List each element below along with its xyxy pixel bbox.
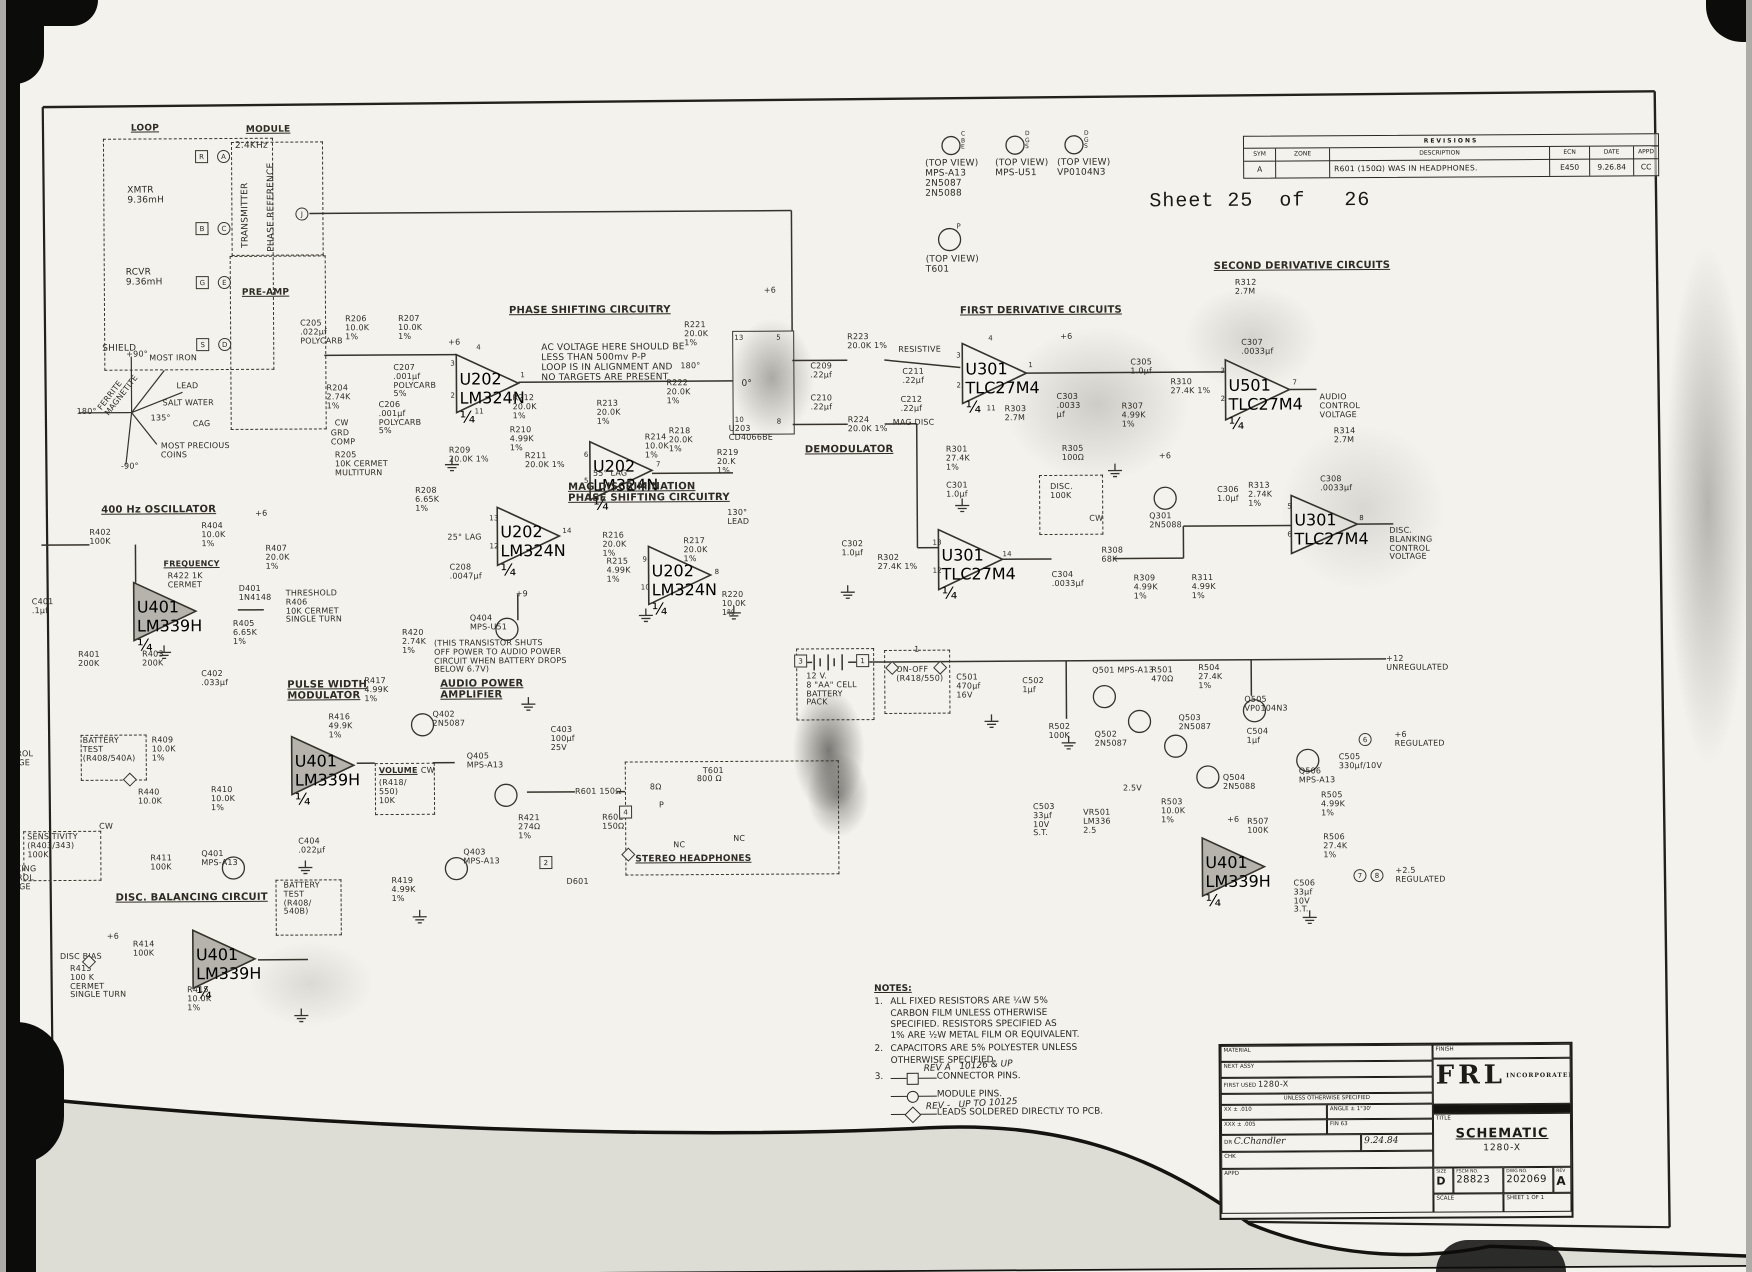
schematic-label: FREQUENCY [164, 560, 220, 569]
material-cell: MATERIAL [1221, 1045, 1433, 1062]
schematic-label: AUDIO POWER AMPLIFIER [440, 678, 523, 701]
schematic-label: C307 .0033μf [1241, 339, 1273, 357]
schematic-label: Q405 MPS-A13 [467, 752, 504, 770]
schematic-label: 14 [562, 528, 571, 536]
schematic-label: 7 [1292, 379, 1297, 387]
dr-date-cell: 9.24.84 [1361, 1134, 1433, 1151]
schematic-label: C506 33μf 10V 3.T. [1293, 879, 1315, 914]
schematic-label: C503 33μf 10V S.T. [1033, 803, 1055, 838]
schematic-label: DISC. BALANCING CIRCUIT [116, 892, 268, 904]
square-pin: 2 [539, 856, 552, 869]
schematic-label: C303 .0033 μf [1057, 393, 1081, 420]
schematic-label: 135° [151, 414, 171, 423]
ground-symbol [955, 498, 969, 511]
ground-symbol [639, 608, 653, 621]
schematic-label: 1 [914, 646, 919, 655]
schematic-label: +6 [764, 287, 776, 296]
schematic-label: R505 4.99K 1% [1321, 791, 1345, 818]
square-pin: 3 [794, 654, 807, 667]
title-cell: TITLE SCHEMATIC 1280-X [1433, 1113, 1571, 1168]
schematic-label: CW [335, 419, 349, 428]
rev-value: A [1556, 1174, 1566, 1188]
ground-symbol [841, 585, 855, 598]
schematic-label: R416 49.9K 1% [328, 713, 352, 740]
schematic-label: R404 10.0K 1% [201, 522, 225, 549]
opamp-label: U202 LM324N ¼ [652, 561, 691, 618]
schematic-label: P [659, 801, 664, 810]
schematic-label: (THIS TRANSISTOR SHUTS OFF POWER TO AUDI… [434, 639, 567, 675]
schematic-label: C212 .22μf [901, 396, 923, 414]
opamp-label: U401 LM339H ¼ [137, 597, 176, 654]
schematic-label: R216 20.0K 1% [602, 532, 626, 559]
schematic-label: Q503 2N5087 [1178, 714, 1211, 732]
schematic-label: 12 [489, 543, 498, 551]
schematic-label: R301 27.4K 1% [946, 445, 970, 472]
schematic-label: +6 [255, 510, 267, 519]
schematic-label: R217 20.0K 1% [683, 537, 707, 564]
schematic-label: R209 20.0K 1% [449, 446, 489, 464]
finish-cell: FINISH [1433, 1044, 1571, 1059]
transistor-symbol [939, 229, 961, 251]
schematic-label: MAG DISCRIMINATION PHASE SHIFTING CIRCUI… [568, 481, 730, 504]
schematic-label: 25° LAG [447, 533, 481, 542]
schematic-label: AC VOLTAGE HERE SHOULD BE LESS THAN 500m… [541, 343, 685, 383]
chk-label: CHK [1224, 1154, 1236, 1160]
transistor-symbol [942, 137, 960, 155]
schematic-label: R222 20.0K 1% [666, 379, 690, 406]
schematic-label: R503 10.0K 1% [1161, 798, 1185, 825]
opamp-label: U202 LM324N ¼ [500, 522, 539, 579]
square-pin: G [196, 276, 209, 289]
schematic-label: R219 20.K 1% [717, 449, 739, 476]
first-used-cell: FIRST USED 1280-X [1221, 1077, 1433, 1094]
schematic-label: C505 330μf/10V [1339, 753, 1382, 771]
schematic-label: R313 2.74K 1% [1248, 482, 1272, 509]
schematic-label: 3 [956, 353, 961, 361]
schematic-label: +2.5 REGULATED [1395, 867, 1445, 885]
rev-description: R601 (150Ω) WAS IN HEADPHONES. [1330, 160, 1550, 177]
schematic-label: 1 [520, 372, 525, 380]
fscm-value: 28823 [1456, 1175, 1490, 1186]
schematic-label: THRESHOLD R406 10K CERMET SINGLE TURN [286, 589, 342, 625]
rev-col-appd: APPD [1634, 146, 1658, 159]
schematic-label: C209 .22μf [810, 362, 832, 380]
tol-fin: FIN 63 [1330, 1121, 1348, 1127]
schematic-label: +90° [126, 350, 148, 359]
schematic-label: R311 4.99K 1% [1192, 574, 1216, 601]
circle-pin: 6 [1359, 733, 1372, 746]
schematic-label: BATTERY TEST (R408/540A) [83, 737, 136, 764]
schematic-label: 13 [734, 335, 743, 343]
schematic-label: R309 4.99K 1% [1134, 574, 1158, 601]
schematic-label: R410 10.0K 1% [211, 786, 235, 813]
schematic-label: C205 .022μf POLYCARB [300, 319, 343, 346]
schematic-label: 3 [450, 361, 455, 369]
schematic-label: R420 2.74K 1% [402, 629, 426, 656]
dr-value: C.Chandler [1234, 1137, 1286, 1147]
opamp-label: U301 TLC27M4 [1294, 510, 1335, 548]
schematic-label: R223 20.0K 1% [847, 333, 887, 351]
size-value: D [1436, 1175, 1446, 1188]
schematic-label: R417 4.99K 1% [364, 677, 388, 704]
schematic-label: GRD COMP [331, 429, 356, 447]
rev-sym: A [1244, 162, 1276, 178]
schematic-label: R504 27.4K 1% [1198, 664, 1222, 691]
schematic-label: R507 100K [1247, 818, 1269, 836]
schematic-label: STEREO HEADPHONES [635, 855, 751, 866]
schematic-label: (TOP VIEW) MPS-U51 [995, 159, 1048, 179]
opamp-label: U301 TLC27M4 ¼ [965, 359, 1005, 416]
rev-date: 9.26.84 [1590, 159, 1634, 175]
schematic-label: CW [1089, 515, 1103, 524]
schematic-label: (TOP VIEW) VP0104N3 [1057, 159, 1110, 179]
transistor-symbol [1197, 766, 1219, 788]
note-number: 3. [875, 1072, 891, 1083]
schematic-label: CAG [193, 420, 211, 429]
schematic-label: R419 4.99K 1% [391, 877, 415, 904]
model-value: 1280-X [1436, 1143, 1568, 1155]
circle-pin: E [218, 276, 231, 289]
schematic-sheet: U202 LM324N ¼U202 LM324N ¼U202 LM324N ¼U… [6, 0, 1746, 1272]
notes-title: NOTES: [874, 982, 1156, 995]
schematic-label: PULSE WIDTH MODULATOR [287, 679, 367, 701]
schematic-label: R207 10.0K 1% [398, 315, 422, 342]
rev-footnote-line2: REV - UP TO 10125 [926, 1096, 1018, 1114]
circle-pin: J [295, 207, 308, 220]
schematic-label: R501 470Ω [1151, 666, 1173, 684]
finish-label: FINISH [1436, 1047, 1454, 1053]
schematic-label: PHASE SHIFTING CIRCUITRY [509, 304, 671, 316]
schematic-label: CW [99, 823, 113, 832]
schematic-label: R310 27.4K 1% [1170, 378, 1210, 396]
schematic-label: NC [673, 841, 685, 850]
circle-pin: A [217, 150, 230, 163]
opamp-label: U202 LM324N ¼ [459, 369, 498, 426]
schematic-label: Q301 2N5088 [1149, 512, 1182, 530]
opamp-label: U401 LM339H ¼ [295, 751, 334, 808]
dwg-no-value: 202069 [1506, 1174, 1547, 1185]
revision-table: REVISIONS SYM ZONE DESCRIPTION ECN DATE … [1243, 133, 1659, 179]
schematic-label: -90° [121, 463, 139, 472]
schematic-label: R411 100K [150, 854, 172, 872]
schematic-label: D G S [1084, 131, 1089, 151]
schematic-label: 7 [656, 461, 661, 469]
schematic-label: 4 [476, 344, 481, 352]
schematic-label: R401 200K [78, 651, 100, 669]
schematic-label: +6 [1159, 452, 1171, 461]
schematic-label: R303 2.7M [1005, 405, 1027, 423]
title-block: MATERIAL NEXT ASSY FIRST USED 1280-X UNL… [1218, 1042, 1573, 1220]
schematic-label: VOLUME [379, 767, 418, 776]
schematic-label: R204 2.74K 1% [326, 384, 350, 411]
wire-segment [1183, 525, 1291, 526]
schematic-label: 2.4KHz [235, 142, 268, 152]
tol-fin-cell: FIN 63 [1327, 1119, 1433, 1135]
schematic-label: 5 [776, 335, 781, 343]
revision-row: A R601 (150Ω) WAS IN HEADPHONES. E450 9.… [1244, 159, 1658, 178]
schematic-label: +6 [107, 933, 119, 942]
schematic-label: (R418/ 550) 10K [379, 779, 407, 806]
schematic-label: R314 2.7M [1334, 427, 1356, 445]
schematic-label: 400 Hz OSCILLATOR [101, 504, 216, 516]
square-icon [907, 1073, 919, 1085]
rev-ecn: E450 [1550, 160, 1590, 176]
schematic-label: BLANKING CONTROL VOLTAGE [6, 865, 37, 892]
schematic-label: 6 [584, 452, 589, 460]
company-name: FRL [1436, 1060, 1507, 1090]
schematic-label: C211 .22μf [902, 368, 924, 386]
first-used-value: 1280-X [1258, 1080, 1289, 1089]
transistor-symbol [495, 784, 517, 806]
schematic-label: Q506 MPS-A13 [1299, 767, 1336, 785]
schematic-label: R413 100 K CERMET SINGLE TURN [70, 965, 126, 1001]
schematic-label: MOST PRECIOUS COINS [161, 442, 230, 460]
circle-pin: 8 [1370, 869, 1383, 882]
schematic-label: R307 4.99K 1% [1122, 402, 1146, 429]
schematic-label: +12 UNREGULATED [1386, 655, 1448, 673]
schematic-label: MOST IRON [149, 354, 197, 363]
circle-pin: D [218, 338, 231, 351]
circle-icon [907, 1091, 919, 1103]
schematic-label: C402 .033μf [201, 670, 228, 688]
schematic-label: 11 [475, 408, 484, 416]
fscm-cell: FSCM NO.28823 [1453, 1167, 1503, 1193]
schematic-label: C210 .22μf [811, 394, 833, 412]
schematic-label: R302 27.4K 1% [877, 554, 917, 572]
schematic-label: 1 [1028, 362, 1033, 370]
ground-symbol [298, 860, 312, 873]
schematic-label: R407 20.0K 1% [265, 545, 289, 572]
schematic-label: C302 1.0μf [841, 540, 863, 558]
phase-vector-line [126, 413, 132, 465]
ground-symbol [984, 714, 998, 727]
scale-cell: SCALE [1433, 1193, 1503, 1212]
schematic-label: R403 200K [142, 650, 164, 668]
schematic-label: C403 100μf 25V [551, 726, 575, 753]
rev-footnote: REV A 10126 & UP REV - UP TO 10125 [922, 1033, 1019, 1139]
schematic-label: AUDIO CONTROL VOLTAGE [6, 741, 33, 768]
schematic-label: LOOP [131, 124, 159, 134]
scale-label: SCALE [1436, 1196, 1454, 1202]
square-pin: S [196, 338, 209, 351]
schematic-label: MAG DISC [893, 419, 935, 428]
schematic-label: +9 [516, 590, 528, 599]
sheet-of-label: SHEET 1 OF 1 [1506, 1195, 1544, 1201]
schematic-label: MODULE [246, 126, 291, 136]
schematic-label: R409 10.0K 1% [152, 736, 176, 763]
wire-segment [791, 211, 792, 331]
schematic-label: R213 20.0K 1% [597, 400, 621, 427]
schematic-label: 8 [715, 569, 720, 577]
schematic-label: 10 [641, 584, 650, 592]
opamp-label: U501 TLC27M4 ¼ [1228, 376, 1268, 433]
sheet-cell: SHEET 1 OF 1 [1503, 1193, 1571, 1212]
schematic-label: 180° [77, 408, 97, 417]
first-used-label: FIRST USED [1224, 1083, 1256, 1089]
schematic-label: R422 1K CERMET [168, 572, 203, 590]
transistor-symbol [1093, 686, 1115, 708]
schematic-label: C504 1μf [1247, 728, 1269, 746]
title-label: TITLE [1436, 1116, 1451, 1122]
schematic-label: 2 [451, 393, 456, 401]
wire-segment [324, 355, 456, 356]
schematic-label: Q404 MPS-U51 [470, 614, 507, 632]
size-cell: SIZED [1433, 1168, 1453, 1194]
schematic-label: R218 20.0K 1% [669, 427, 693, 454]
schematic-label: C301 1.0μf [946, 481, 968, 499]
schematic-label: R206 10.0K 1% [345, 315, 369, 342]
dr-label: DR [1224, 1140, 1232, 1146]
tolerance-header: UNLESS OTHERWISE SPECIFIED [1284, 1095, 1370, 1102]
schematic-label: 11 [987, 405, 996, 413]
rev-appd: CC [1634, 159, 1658, 175]
schematic-label: PRE-AMP [242, 289, 289, 299]
schematic-label: DEMODULATOR [805, 444, 894, 456]
schematic-label: FIRST DERIVATIVE CIRCUITS [960, 305, 1122, 317]
schematic-label: 2 [1221, 396, 1226, 404]
note-item: 2. CAPACITORS ARE 5% POLYESTER UNLESS OT… [874, 1043, 1156, 1067]
schematic-label: LEAD [176, 382, 198, 391]
schematic-label: TRANSMITTER [241, 182, 251, 247]
ground-symbol [413, 910, 427, 923]
square-pin: B [195, 222, 208, 235]
appd-label: APPD [1224, 1171, 1239, 1177]
ground-symbol [1108, 464, 1122, 477]
schematic-label: CW [421, 767, 435, 776]
schematic-label: Q501 MPS-A13 [1092, 666, 1154, 675]
schematic-label: C501 470μf 16V [956, 673, 980, 700]
schematic-label: R502 100K [1049, 723, 1071, 741]
schematic-label: C404 .022μf [298, 837, 325, 855]
schematic-label: C206 .001μf POLYCARB 5% [379, 401, 422, 436]
tol-xx: XX ± .010 [1224, 1107, 1252, 1113]
schematic-label: 5 [1287, 503, 1292, 511]
square-pin: R [195, 150, 208, 163]
schematic-label: 12 V. 8 "AA" CELL BATTERY PACK [806, 672, 857, 707]
schematic-label: DISC. BLANKING CONTROL VOLTAGE [1389, 527, 1432, 562]
schematic-label: VR501 LM336 2.5 [1083, 809, 1111, 836]
schematic-label: D601 [566, 878, 588, 887]
schematic-label: C208 .0047μf [450, 563, 482, 581]
transistor-symbol [411, 714, 433, 736]
schematic-label: 55° LAG [593, 470, 627, 479]
wire-segment [309, 211, 791, 214]
schematic-label: R305 100Ω [1062, 445, 1084, 463]
schematic-label: 4 [988, 335, 993, 343]
schematic-label: +6 [1227, 816, 1239, 825]
schematic-label: Q502 2N5087 [1095, 731, 1128, 749]
schematic-label: R308 68K [1101, 547, 1123, 565]
schematic-label: R312 2.7M [1235, 279, 1257, 297]
schematic-label: 8Ω [650, 783, 662, 792]
schematic-label: R221 20.0K 1% [684, 321, 708, 348]
schematic-label: 800 Ω [697, 775, 722, 784]
schematic-label: C308 .0033μf [1320, 475, 1352, 493]
schematic-label: R415 10.0K 1% [187, 986, 211, 1013]
tol-angle-cell: ANGLE ± 1°30' [1327, 1104, 1433, 1120]
title-value: SCHEMATIC [1436, 1125, 1568, 1141]
schematic-label: R421 274Ω 1% [518, 814, 540, 841]
scan-background: U202 LM324N ¼U202 LM324N ¼U202 LM324N ¼U… [0, 0, 1752, 1272]
opamp-label: U401 LM339H ¼ [1205, 853, 1244, 910]
schematic-label: R208 6.65K 1% [415, 487, 439, 514]
opamp-label: U301 TLC27M4 ¼ [941, 545, 981, 602]
schematic-label: +6 [448, 339, 460, 348]
wire-segment [1026, 372, 1224, 373]
schematic-label: C306 1.0μf [1217, 486, 1239, 504]
schematic-label: 8 [777, 419, 782, 427]
tol-xxx: XXX ± .005 [1224, 1122, 1256, 1128]
schematic-label: SECOND DERIVATIVE CIRCUITS [1214, 260, 1390, 272]
schematic-label: Q505 VP0104N3 [1244, 696, 1287, 714]
schematic-label: D401 1N4148 [239, 585, 272, 603]
rev-col-date: DATE [1590, 146, 1634, 159]
schematic-label: SALT WATER [163, 399, 214, 408]
company-logo: FRLINCORPORATED [1436, 1060, 1568, 1092]
schematic-label: Q504 2N5088 [1223, 774, 1256, 792]
schematic-label: C207 .001μf POLYCARB 5% [393, 364, 436, 399]
schematic-label: 6 [1287, 531, 1292, 539]
square-pin: 4 [619, 806, 632, 819]
transistor-symbol [1154, 487, 1176, 509]
schematic-label: 8 [1359, 515, 1364, 523]
schematic-label: R601 150Ω [575, 788, 622, 797]
transistor-symbol [1006, 136, 1024, 154]
scanned-schematic-page: { "sheet": { "number_label": "Sheet 25 o… [0, 0, 1752, 1272]
schematic-label: D G S [1025, 131, 1030, 151]
schematic-label: +6 REGULATED [1395, 731, 1445, 749]
sheet-number: Sheet 25 of 26 [1149, 191, 1370, 212]
schematic-label: 0° [741, 380, 752, 390]
tol-xx-cell: XX ± .010 [1221, 1104, 1327, 1120]
schematic-label: R414 100K [133, 940, 155, 958]
schematic-label: R440 10.0K [138, 788, 162, 806]
chk-cell: CHK [1221, 1151, 1433, 1169]
schematic-label: P [956, 224, 960, 232]
appd-cell: APPD [1221, 1168, 1433, 1214]
schematic-label: R224 20.0K 1% [848, 416, 888, 434]
schematic-label: Q401 MPS-A13 [201, 850, 238, 868]
company-suffix: INCORPORATED [1506, 1072, 1571, 1079]
note-number: 2. [874, 1044, 890, 1067]
sheet-content: U202 LM324N ¼U202 LM324N ¼U202 LM324N ¼U… [6, 0, 1746, 1272]
wire-segment [917, 424, 918, 548]
tol-xxx-cell: XXX ± .005 [1221, 1119, 1327, 1135]
note-number: 1. [874, 997, 890, 1042]
schematic-label: C502 1μf [1022, 677, 1044, 695]
dr-cell: DR C.Chandler [1221, 1134, 1361, 1152]
schematic-label: Q402 2N5087 [432, 711, 465, 729]
next-assy-label: NEXT ASSY [1224, 1064, 1255, 1070]
transistor-symbol [1128, 710, 1150, 732]
schematic-label: R506 27.4K 1% [1323, 833, 1347, 860]
schematic-label: Q403 MPS-A13 [463, 848, 500, 866]
rev-col-sym: SYM [1244, 149, 1276, 162]
schematic-label: +6 [1060, 333, 1072, 342]
square-pin: 1 [856, 654, 869, 667]
schematic-label: R205 10K CERMET MULTITURN [335, 451, 388, 478]
schematic-label: 14 [1002, 551, 1011, 559]
schematic-label: C305 1.0μf [1130, 358, 1152, 376]
schematic-label: 2.5V [1123, 784, 1142, 793]
schematic-label: R212 20.0K 1% [513, 394, 537, 421]
schematic-label: 180° [680, 362, 700, 371]
schematic-label: 13 [932, 540, 941, 548]
schematic-label: RCVR 9.36mH [126, 268, 163, 288]
dwg-no-cell: DWG NO.202069 [1503, 1167, 1553, 1193]
schematic-label: RESISTIVE [898, 346, 941, 355]
schematic-label: AUDIO CONTROL VOLTAGE [1320, 393, 1361, 420]
